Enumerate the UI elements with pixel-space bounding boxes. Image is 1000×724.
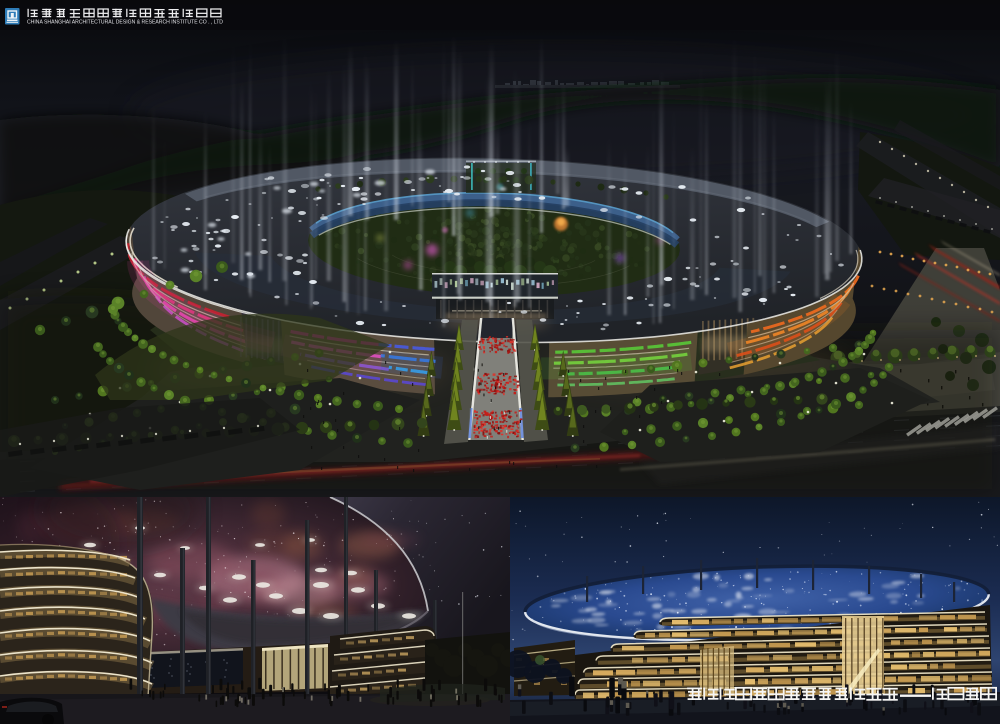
svg-text:CHINA SHANGHAI ARCHITECTURAL D: CHINA SHANGHAI ARCHITECTURAL DESIGN & RE… [27,19,223,25]
